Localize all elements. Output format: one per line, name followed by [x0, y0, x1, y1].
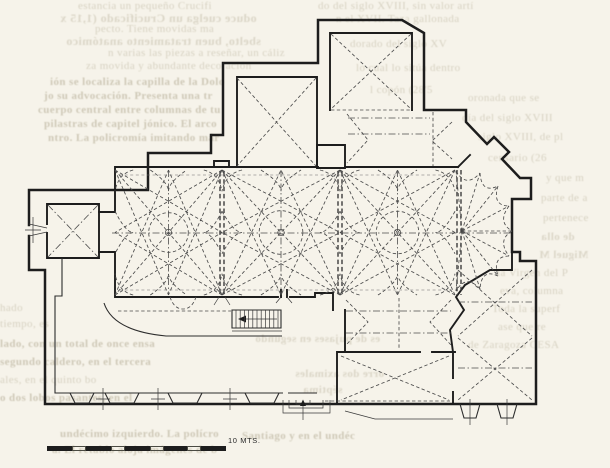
scale-bar-segment	[187, 446, 201, 451]
floor-plan-drawing	[0, 0, 610, 468]
pulpit-niche	[170, 297, 196, 309]
scale-bar-segment	[150, 446, 164, 451]
chapel-2-vault	[331, 34, 411, 110]
sacristy-vaults	[458, 270, 532, 400]
scale-label: 10 MTS.	[228, 436, 261, 445]
scale-bar-segment	[86, 446, 111, 451]
scale-bar-segment	[164, 446, 187, 451]
scale-bar	[47, 445, 226, 452]
scale-bar-segment	[72, 446, 86, 451]
scale-bar-segment	[125, 446, 150, 451]
nave-star-vaults	[115, 170, 455, 295]
south-chapel-vault	[346, 298, 451, 350]
entrance-porch	[283, 400, 453, 421]
scale-bar-segment	[201, 446, 226, 451]
scale-bar-segment	[111, 446, 125, 451]
staircase	[118, 297, 281, 328]
crossing-pier	[317, 145, 345, 168]
crossing-bay-vault	[347, 112, 452, 166]
thin-walls	[25, 217, 317, 393]
vault-ribs-static	[48, 34, 532, 400]
scanned-page: estancia un pequeño Crucifioduce cuelga …	[0, 0, 610, 468]
chapel-1-vault	[237, 78, 316, 166]
sw-room-vault	[341, 356, 449, 400]
interior-walls	[47, 33, 512, 404]
tower-vault	[48, 205, 98, 257]
scale-bar-segment	[47, 446, 72, 451]
